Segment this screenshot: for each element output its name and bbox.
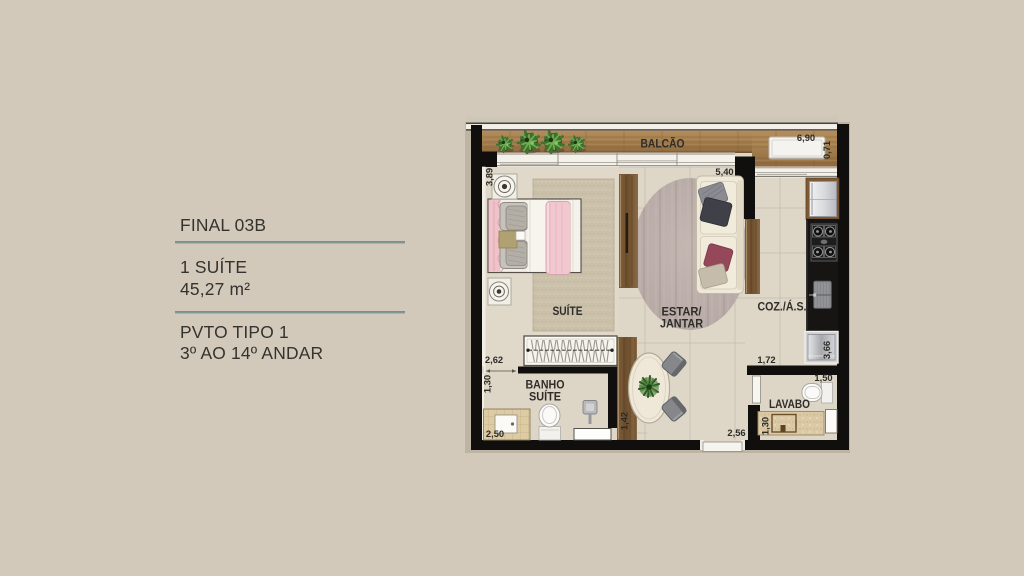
- svg-text:1,72: 1,72: [757, 354, 775, 365]
- svg-text:COZ./Á.S.: COZ./Á.S.: [758, 300, 807, 314]
- svg-text:1,30: 1,30: [482, 375, 493, 393]
- svg-text:1,42: 1,42: [619, 412, 630, 430]
- svg-text:BALCÃO: BALCÃO: [641, 137, 685, 151]
- svg-text:0,71: 0,71: [821, 141, 832, 159]
- svg-text:3,66: 3,66: [821, 341, 832, 359]
- svg-text:2,50: 2,50: [486, 428, 504, 439]
- svg-text:1,30: 1,30: [760, 417, 771, 435]
- svg-text:2,56: 2,56: [727, 427, 745, 438]
- svg-text:6,90: 6,90: [797, 132, 815, 143]
- svg-text:5,40: 5,40: [715, 166, 733, 177]
- svg-text:2,62: 2,62: [485, 354, 503, 365]
- svg-text:1,50: 1,50: [814, 372, 832, 383]
- svg-text:SUÍTE: SUÍTE: [553, 304, 583, 318]
- svg-text:SUÍTE: SUÍTE: [529, 390, 561, 404]
- svg-text:3,89: 3,89: [484, 168, 495, 186]
- svg-text:JANTAR: JANTAR: [660, 317, 703, 331]
- svg-text:LAVABO: LAVABO: [769, 397, 810, 411]
